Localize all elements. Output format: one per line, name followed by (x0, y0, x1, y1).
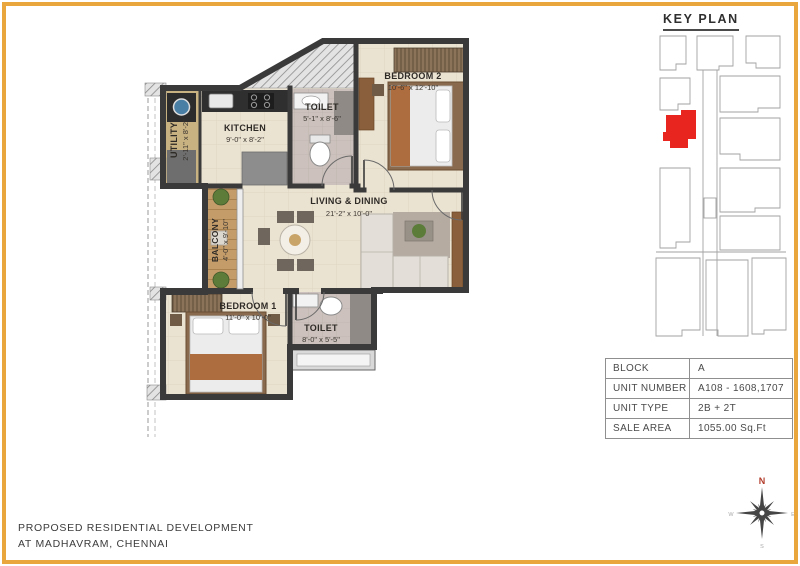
key-plan-drawing (656, 36, 786, 336)
svg-text:TOILET: TOILET (304, 323, 338, 333)
wardrobe-icon-2 (172, 294, 222, 312)
svg-text:4'-0" x 9'-10": 4'-0" x 9'-10" (221, 219, 230, 261)
kitchen-counter (202, 90, 289, 112)
svg-text:11'-0" x 10'-0": 11'-0" x 10'-0" (225, 313, 271, 322)
table-row: SALE AREA 1055.00 Sq.Ft (606, 419, 792, 438)
table-value: A (690, 359, 792, 378)
svg-text:BEDROOM 2: BEDROOM 2 (384, 71, 441, 81)
table-label: BLOCK (606, 359, 690, 378)
compass-south-label: S (760, 544, 764, 550)
svg-text:2'-11" x 8'-2": 2'-11" x 8'-2" (181, 119, 190, 161)
side-table-icon-2 (170, 314, 182, 326)
compass-east-label: E (791, 512, 795, 518)
floor-plan: UTILITY 2'-11" x 8'-2" KITCHEN 9'-0" x 8… (145, 41, 466, 437)
svg-text:21'-2" x 10'-0": 21'-2" x 10'-0" (326, 209, 372, 218)
sliding-door (237, 189, 243, 289)
key-plan-highlighted-unit (663, 110, 696, 148)
side-table-icon (372, 84, 384, 96)
project-line-2: AT MADHAVRAM, CHENNAI (18, 536, 254, 552)
svg-text:BALCONY: BALCONY (210, 218, 220, 262)
washing-machine-icon (167, 93, 196, 122)
svg-text:BEDROOM 1: BEDROOM 1 (219, 301, 276, 311)
table-value: A108 - 1608,1707 (690, 379, 792, 398)
table-label: UNIT TYPE (606, 399, 690, 418)
table-row: UNIT NUMBER A108 - 1608,1707 (606, 379, 792, 399)
bed-icon (388, 82, 464, 170)
svg-text:LIVING & DINING: LIVING & DINING (310, 196, 388, 206)
table-value: 1055.00 Sq.Ft (690, 419, 792, 438)
ac-ledge (292, 350, 375, 370)
svg-text:5'-1" x 8'-6": 5'-1" x 8'-6" (303, 114, 341, 123)
table-row: BLOCK A (606, 359, 792, 379)
project-line-1: PROPOSED RESIDENTIAL DEVELOPMENT (18, 520, 254, 536)
kitchen-island (242, 152, 287, 185)
svg-text:KITCHEN: KITCHEN (224, 123, 266, 133)
svg-text:UTILITY: UTILITY (169, 122, 179, 158)
brochure-page: UTILITY 2'-11" x 8'-2" KITCHEN 9'-0" x 8… (0, 0, 800, 566)
table-label: UNIT NUMBER (606, 379, 690, 398)
tv-console-icon (452, 212, 463, 288)
compass-west-label: W (728, 512, 734, 518)
svg-text:10'-6" x 12'-10": 10'-6" x 12'-10" (388, 83, 439, 92)
table-label: SALE AREA (606, 419, 690, 438)
bed-icon-2 (186, 312, 266, 394)
svg-text:TOILET: TOILET (305, 102, 339, 112)
compass-rose-icon: N E S W (728, 476, 795, 550)
table-value: 2B + 2T (690, 399, 792, 418)
floor-plan-svg: UTILITY 2'-11" x 8'-2" KITCHEN 9'-0" x 8… (0, 0, 800, 566)
svg-text:9'-0" x 8'-2": 9'-0" x 8'-2" (226, 135, 264, 144)
project-description: PROPOSED RESIDENTIAL DEVELOPMENT AT MADH… (18, 520, 254, 552)
wardrobe-icon (394, 48, 464, 72)
sofa-icon (361, 212, 463, 290)
compass-north-label: N (759, 476, 766, 486)
key-plan-title: KEY PLAN (663, 12, 739, 31)
table-row: UNIT TYPE 2B + 2T (606, 399, 792, 419)
svg-text:8'-0" x 5'-5": 8'-0" x 5'-5" (302, 335, 340, 344)
unit-info-table: BLOCK A UNIT NUMBER A108 - 1608,1707 UNI… (605, 358, 793, 439)
